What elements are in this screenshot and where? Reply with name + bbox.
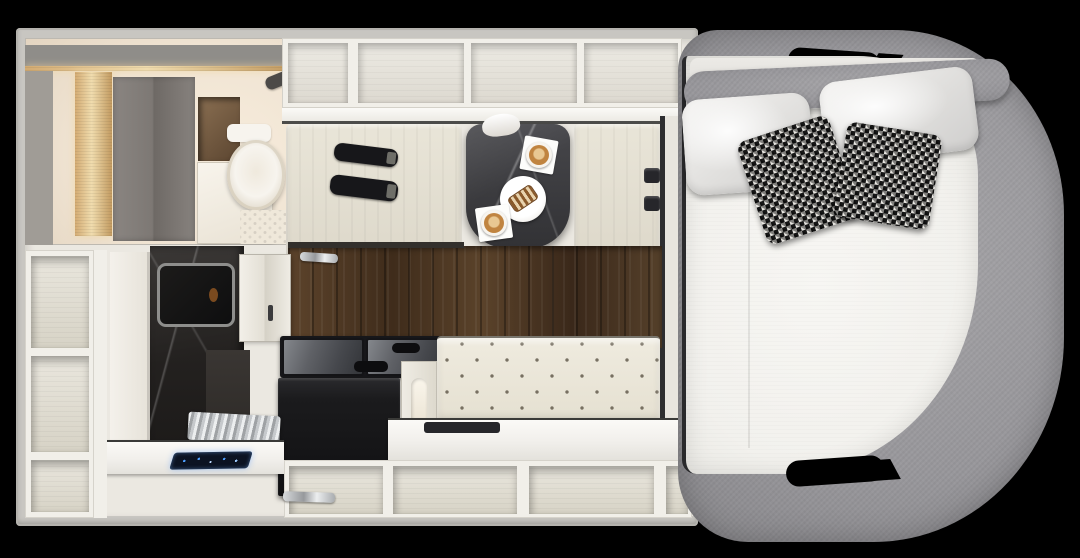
bathroom xyxy=(25,38,295,245)
overhead-shelf-cell xyxy=(358,43,464,103)
bottom-storage-row xyxy=(284,460,692,518)
floor-plan-canvas xyxy=(0,0,1080,558)
storage-cubby xyxy=(31,356,89,452)
storage-cubby xyxy=(529,466,654,514)
wardrobe-doors xyxy=(113,77,195,241)
serving-tray xyxy=(424,422,500,433)
dinette-table xyxy=(466,124,570,248)
grab-handle xyxy=(283,491,335,503)
cabinet-handle xyxy=(268,305,273,321)
floor-step-trim xyxy=(288,242,464,248)
belt-buckle xyxy=(644,196,660,211)
overhead-shelves xyxy=(282,38,682,108)
coffee-cup xyxy=(526,142,552,168)
overhead-shelf-cell xyxy=(471,43,577,103)
overhead-shelf-cell xyxy=(584,43,678,103)
belt-buckle xyxy=(644,168,660,183)
wood-floor xyxy=(288,246,662,348)
storage-cubby xyxy=(31,460,89,512)
overhead-shelf-cell xyxy=(288,43,348,103)
lid-handle xyxy=(392,343,420,353)
kitchen-cabinet xyxy=(240,255,290,341)
touch-control-panel xyxy=(169,451,253,469)
bathroom-light-trim xyxy=(25,66,295,71)
bathroom-left-wall xyxy=(25,71,53,245)
left-storage-column xyxy=(25,250,107,518)
storage-cubby xyxy=(289,466,383,514)
shelf-lip xyxy=(282,108,682,124)
coffee-cup xyxy=(481,210,507,236)
cooktop-glass xyxy=(282,338,364,376)
led-strip xyxy=(75,72,112,236)
storage-cubby xyxy=(31,256,89,348)
dinette-bench-right xyxy=(574,124,660,260)
side-counter xyxy=(388,418,692,460)
skylight-window xyxy=(157,263,235,327)
toilet-tank xyxy=(227,124,271,142)
hex-tile-floor xyxy=(240,210,292,244)
bed-pillow-houndstooth xyxy=(833,121,943,231)
toilet xyxy=(227,140,285,210)
tufted-sofa xyxy=(437,336,660,422)
living-area-shell xyxy=(16,28,698,526)
storage-cubby xyxy=(393,466,517,514)
pastry xyxy=(507,184,540,214)
hall-door-panel xyxy=(110,252,150,464)
lid-handle xyxy=(354,361,388,372)
bathroom-top-cabinet xyxy=(25,45,295,66)
